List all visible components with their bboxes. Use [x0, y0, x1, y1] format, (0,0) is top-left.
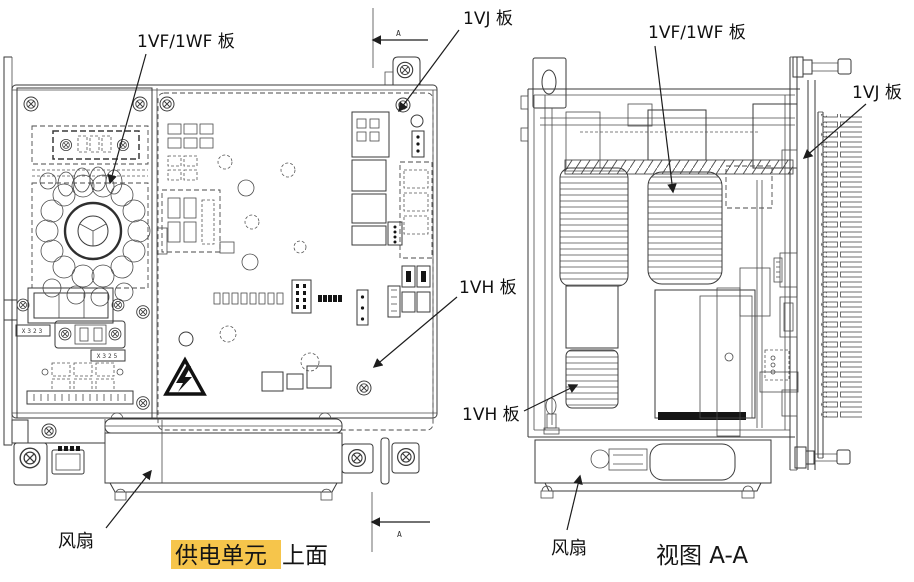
left-label-1vh-board: 1VH 板 — [459, 278, 517, 298]
left-view-caption: 供电单元 上面 — [171, 540, 328, 569]
right-label-1vh-board: 1VH 板 — [462, 405, 520, 425]
sub-board — [17, 88, 157, 418]
high-voltage-warning-icon — [166, 360, 204, 394]
chassis-outline — [4, 57, 437, 445]
right-label-fan: 风扇 — [551, 538, 587, 559]
caption-highlighted-text: 供电单元 — [175, 543, 267, 569]
left-leader-fan — [106, 471, 151, 528]
smd-row — [214, 293, 283, 304]
fan-assembly-side-view — [535, 440, 771, 498]
coil-1vf-1wf — [648, 172, 722, 284]
top-bolt — [793, 57, 851, 77]
heatsink — [818, 112, 862, 458]
terminal-block-area: X323 X325 — [16, 288, 133, 404]
left-label-1vj-board: 1VJ 板 — [463, 9, 513, 29]
left-label-1vf-1wf-board: 1VF/1WF 板 — [137, 32, 235, 52]
toroid-coil — [36, 167, 150, 306]
left-label-fan: 风扇 — [58, 531, 94, 552]
vj-board — [774, 57, 815, 470]
header-connectors — [292, 280, 400, 325]
section-letter-bottom: A — [397, 530, 402, 539]
right-view-side-view: 1VF/1WF 板 1VJ 板 1VH 板 风扇 视图 A-A — [462, 23, 902, 569]
right-leader-fan — [567, 476, 580, 530]
left-view-top-view: X323 X325 — [4, 8, 517, 569]
stud-bolt — [544, 398, 559, 434]
screw-top-tab — [397, 62, 412, 77]
left-leader-1vj — [399, 30, 459, 111]
right-view-caption: 视图 A-A — [656, 543, 748, 569]
side-mounting-bracket — [533, 58, 566, 108]
drawing-svg: X323 X325 — [0, 0, 914, 582]
right-label-1vj-board: 1VJ 板 — [852, 83, 902, 103]
right-connector-stack — [352, 112, 432, 312]
connector-label-x325: X325 — [97, 353, 119, 360]
heatsink-fins — [824, 114, 862, 420]
fan-assembly-left-view — [12, 413, 419, 500]
connector-label-x323: X323 — [22, 328, 44, 335]
technical-drawing-page: X323 X325 — [0, 0, 914, 582]
right-label-1vf-1wf-board: 1VF/1WF 板 — [648, 23, 746, 43]
fan-connector — [52, 446, 84, 474]
section-mark-bottom: A — [372, 492, 430, 552]
caption-rest-text: 上面 — [282, 543, 328, 569]
section-letter-top: A — [396, 29, 401, 38]
